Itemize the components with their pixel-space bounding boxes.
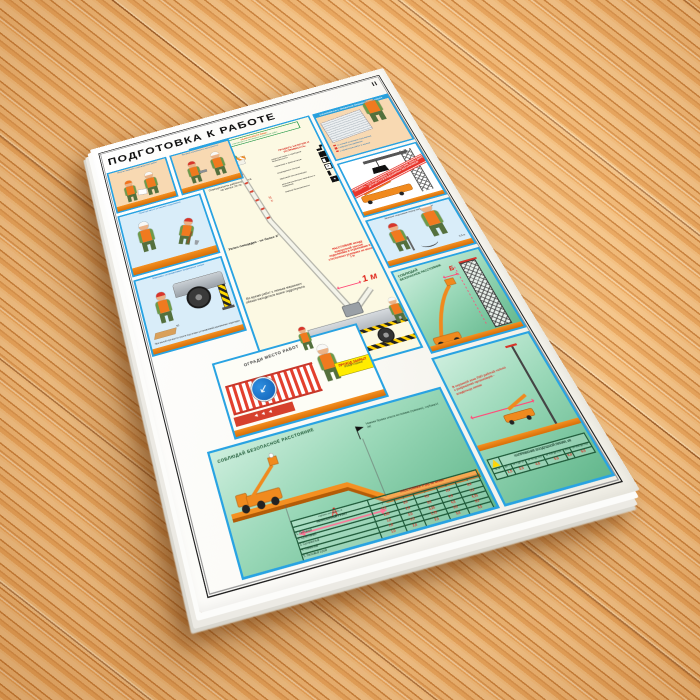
machinist-figure: [151, 290, 176, 324]
bullet-icon: [336, 150, 339, 152]
safety-poster-board: ПОДГОТОВКА К РАБОТЕ II ОБЯЗАННОСТИ ЛИЦА,…: [90, 68, 640, 613]
shovel-blade: [194, 240, 200, 245]
boom-length-mark: 30 м: [267, 195, 275, 203]
worker-with-jackhammer: [383, 221, 413, 252]
crane-cable: [375, 160, 379, 166]
lift-boom: [507, 393, 526, 410]
poster-shadow: ПОДГОТОВКА К РАБОТЕ II ОБЯЗАННОСТИ ЛИЦА,…: [0, 0, 700, 700]
sheet-number: II: [370, 80, 379, 87]
pad-dimension: 50: [176, 323, 180, 327]
poster-frame: ПОДГОТОВКА К РАБОТЕ II ОБЯЗАННОСТИ ЛИЦА,…: [98, 75, 623, 598]
wooden-table-background: ПОДГОТОВКА К РАБОТЕ II ОБЯЗАННОСТИ ЛИЦА,…: [0, 0, 700, 700]
fence-heading: ОГРАДИ МЕСТО РАБОТ: [243, 344, 300, 368]
wheel: [367, 200, 373, 205]
worker-with-cable: [414, 200, 452, 237]
crane-jib: [363, 150, 408, 165]
drill-tool: [199, 169, 207, 173]
powerline-warning: В охранной зоне ЛЭП работай только с раз…: [452, 365, 513, 396]
outrigger-jack: [218, 284, 231, 307]
worker-figure: [206, 150, 229, 176]
passage-closed-sign: ПРОХОД ЗАКРЫТ обойди стороной: [334, 355, 373, 377]
supervisor-figure: [134, 220, 160, 254]
worker-figure: [121, 179, 140, 203]
grounding-dimension: 0,5 м: [459, 234, 466, 238]
wheel: [399, 191, 405, 196]
